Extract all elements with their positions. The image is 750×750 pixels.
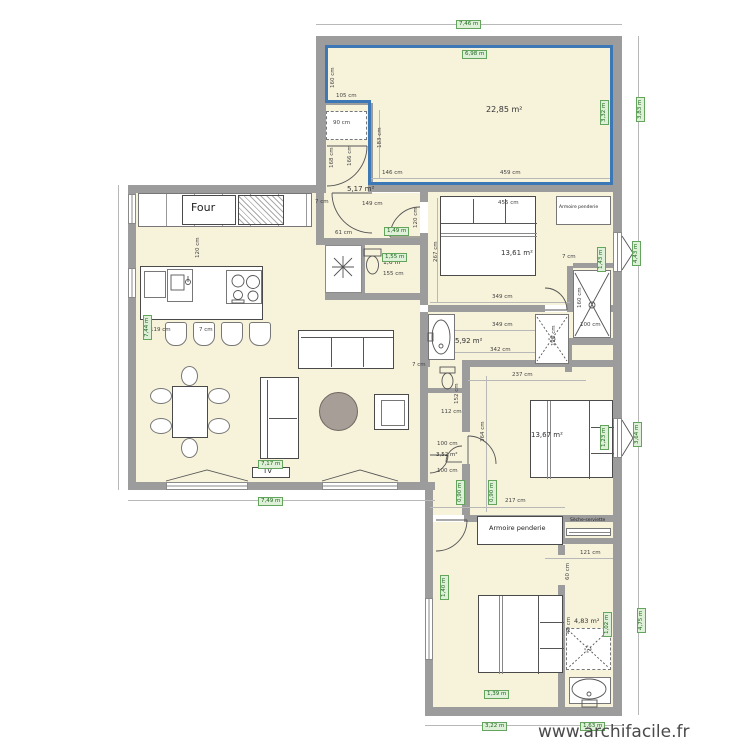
dimension-label: 105 cm (336, 94, 357, 100)
room-area-label: 3,52 m² (436, 453, 458, 459)
room-area-label: 5,92 m² (455, 338, 482, 345)
dimension-label: 61 cm (335, 231, 352, 237)
wall-length-label[interactable]: 1,23 m (600, 425, 609, 450)
room-area-label: 13,67 m² (531, 432, 563, 439)
dimension-label: 100 cm (437, 442, 458, 448)
dimension-label: 168 cm (330, 147, 336, 168)
dimension-label: 267 cm (434, 241, 440, 262)
wall-length-label[interactable]: 7,17 m (258, 460, 283, 469)
wall-length-label[interactable]: 1,39 m (484, 690, 509, 699)
dimension-label: 166 cm (348, 145, 354, 166)
wall-length-label[interactable]: 3,83 m (636, 97, 645, 122)
dimension-label: 152 cm (455, 383, 461, 404)
dimension-label: 40 cm (567, 617, 573, 634)
furniture-label: Armoire penderie (489, 525, 546, 532)
dimension-label: 217 cm (505, 499, 526, 505)
dimension-label: 7 cm (199, 328, 213, 334)
dimension-label: 90 cm (333, 121, 350, 127)
dimension-label: 149 cm (362, 202, 383, 208)
floor-plan-canvas[interactable]: 22,85 m²5,17 m²1,6 m²13,61 m²5,92 m²13,6… (0, 0, 750, 750)
dimension-label: 459 cm (500, 171, 521, 177)
furniture-label: Four (191, 202, 215, 214)
wall-length-label[interactable]: 7,44 m (143, 315, 152, 340)
dimension-label: 120 cm (414, 207, 420, 228)
room-area-label: 13,61 m² (501, 250, 533, 257)
wall-length-label[interactable]: 1,40 m (440, 575, 449, 600)
wall-length-label[interactable]: 7,46 m (456, 20, 481, 29)
dimension-label: 455 cm (498, 201, 519, 207)
furniture-label: Armoire penderie (559, 206, 598, 211)
dimension-label: 112 cm (441, 410, 462, 416)
wall-length-label[interactable]: 0,90 m (456, 480, 465, 505)
dimension-label: 100 cm (580, 323, 601, 329)
wall-length-label[interactable]: 1,55 m (382, 253, 407, 262)
dimension-label: 121 cm (580, 551, 601, 557)
wall-length-label[interactable]: 7,49 m (258, 497, 283, 506)
wall-length-label[interactable]: 1,02 m (603, 612, 612, 637)
dimension-label: 7 cm (562, 255, 576, 261)
watermark: www.archifacile.fr (538, 722, 689, 742)
dimension-label: 155 cm (383, 272, 404, 278)
dimension-label: 160 cm (578, 287, 584, 308)
wall-length-label[interactable]: 3,64 m (633, 422, 642, 447)
wall-length-label[interactable]: 4,75 m (637, 608, 646, 633)
wall-length-label[interactable]: 3,22 m (482, 722, 507, 731)
labels-layer: 22,85 m²5,17 m²1,6 m²13,61 m²5,92 m²13,6… (0, 0, 750, 750)
dimension-label: 160 cm (331, 67, 337, 88)
dimension-label: 349 cm (492, 323, 513, 329)
wall-length-label[interactable]: 4,43 m (632, 241, 641, 266)
room-area-label: 5,17 m² (347, 186, 374, 193)
dimension-label: 146 cm (382, 171, 403, 177)
furniture-label: TV (263, 468, 272, 475)
dimension-label: 60 cm (566, 563, 572, 580)
wall-length-label[interactable]: 0,90 m (488, 480, 497, 505)
dimension-label: 364 cm (481, 421, 487, 442)
dimension-label: 237 cm (512, 373, 533, 379)
dimension-label: 100 cm (437, 469, 458, 475)
dimension-label: 7 cm (412, 363, 426, 369)
room-area-label: 22,85 m² (486, 106, 522, 114)
room-area-label: 4,83 m² (574, 618, 599, 625)
dimension-label: 120 cm (552, 325, 558, 346)
dimension-label: 120 cm (196, 237, 202, 258)
dimension-label: 183 cm (378, 127, 384, 148)
wall-length-label[interactable]: 3,32 m (600, 100, 609, 125)
wall-length-label[interactable]: 1,49 m (384, 227, 409, 236)
furniture-label: Sèche-serviette (570, 519, 605, 524)
dimension-label: 349 cm (492, 295, 513, 301)
dimension-label: 7 cm (315, 200, 329, 206)
dimension-label: 119 cm (150, 328, 171, 334)
wall-length-label[interactable]: 6,98 m (462, 50, 487, 59)
dimension-label: 342 cm (490, 348, 511, 354)
wall-length-label[interactable]: 1,43 m (597, 247, 606, 272)
